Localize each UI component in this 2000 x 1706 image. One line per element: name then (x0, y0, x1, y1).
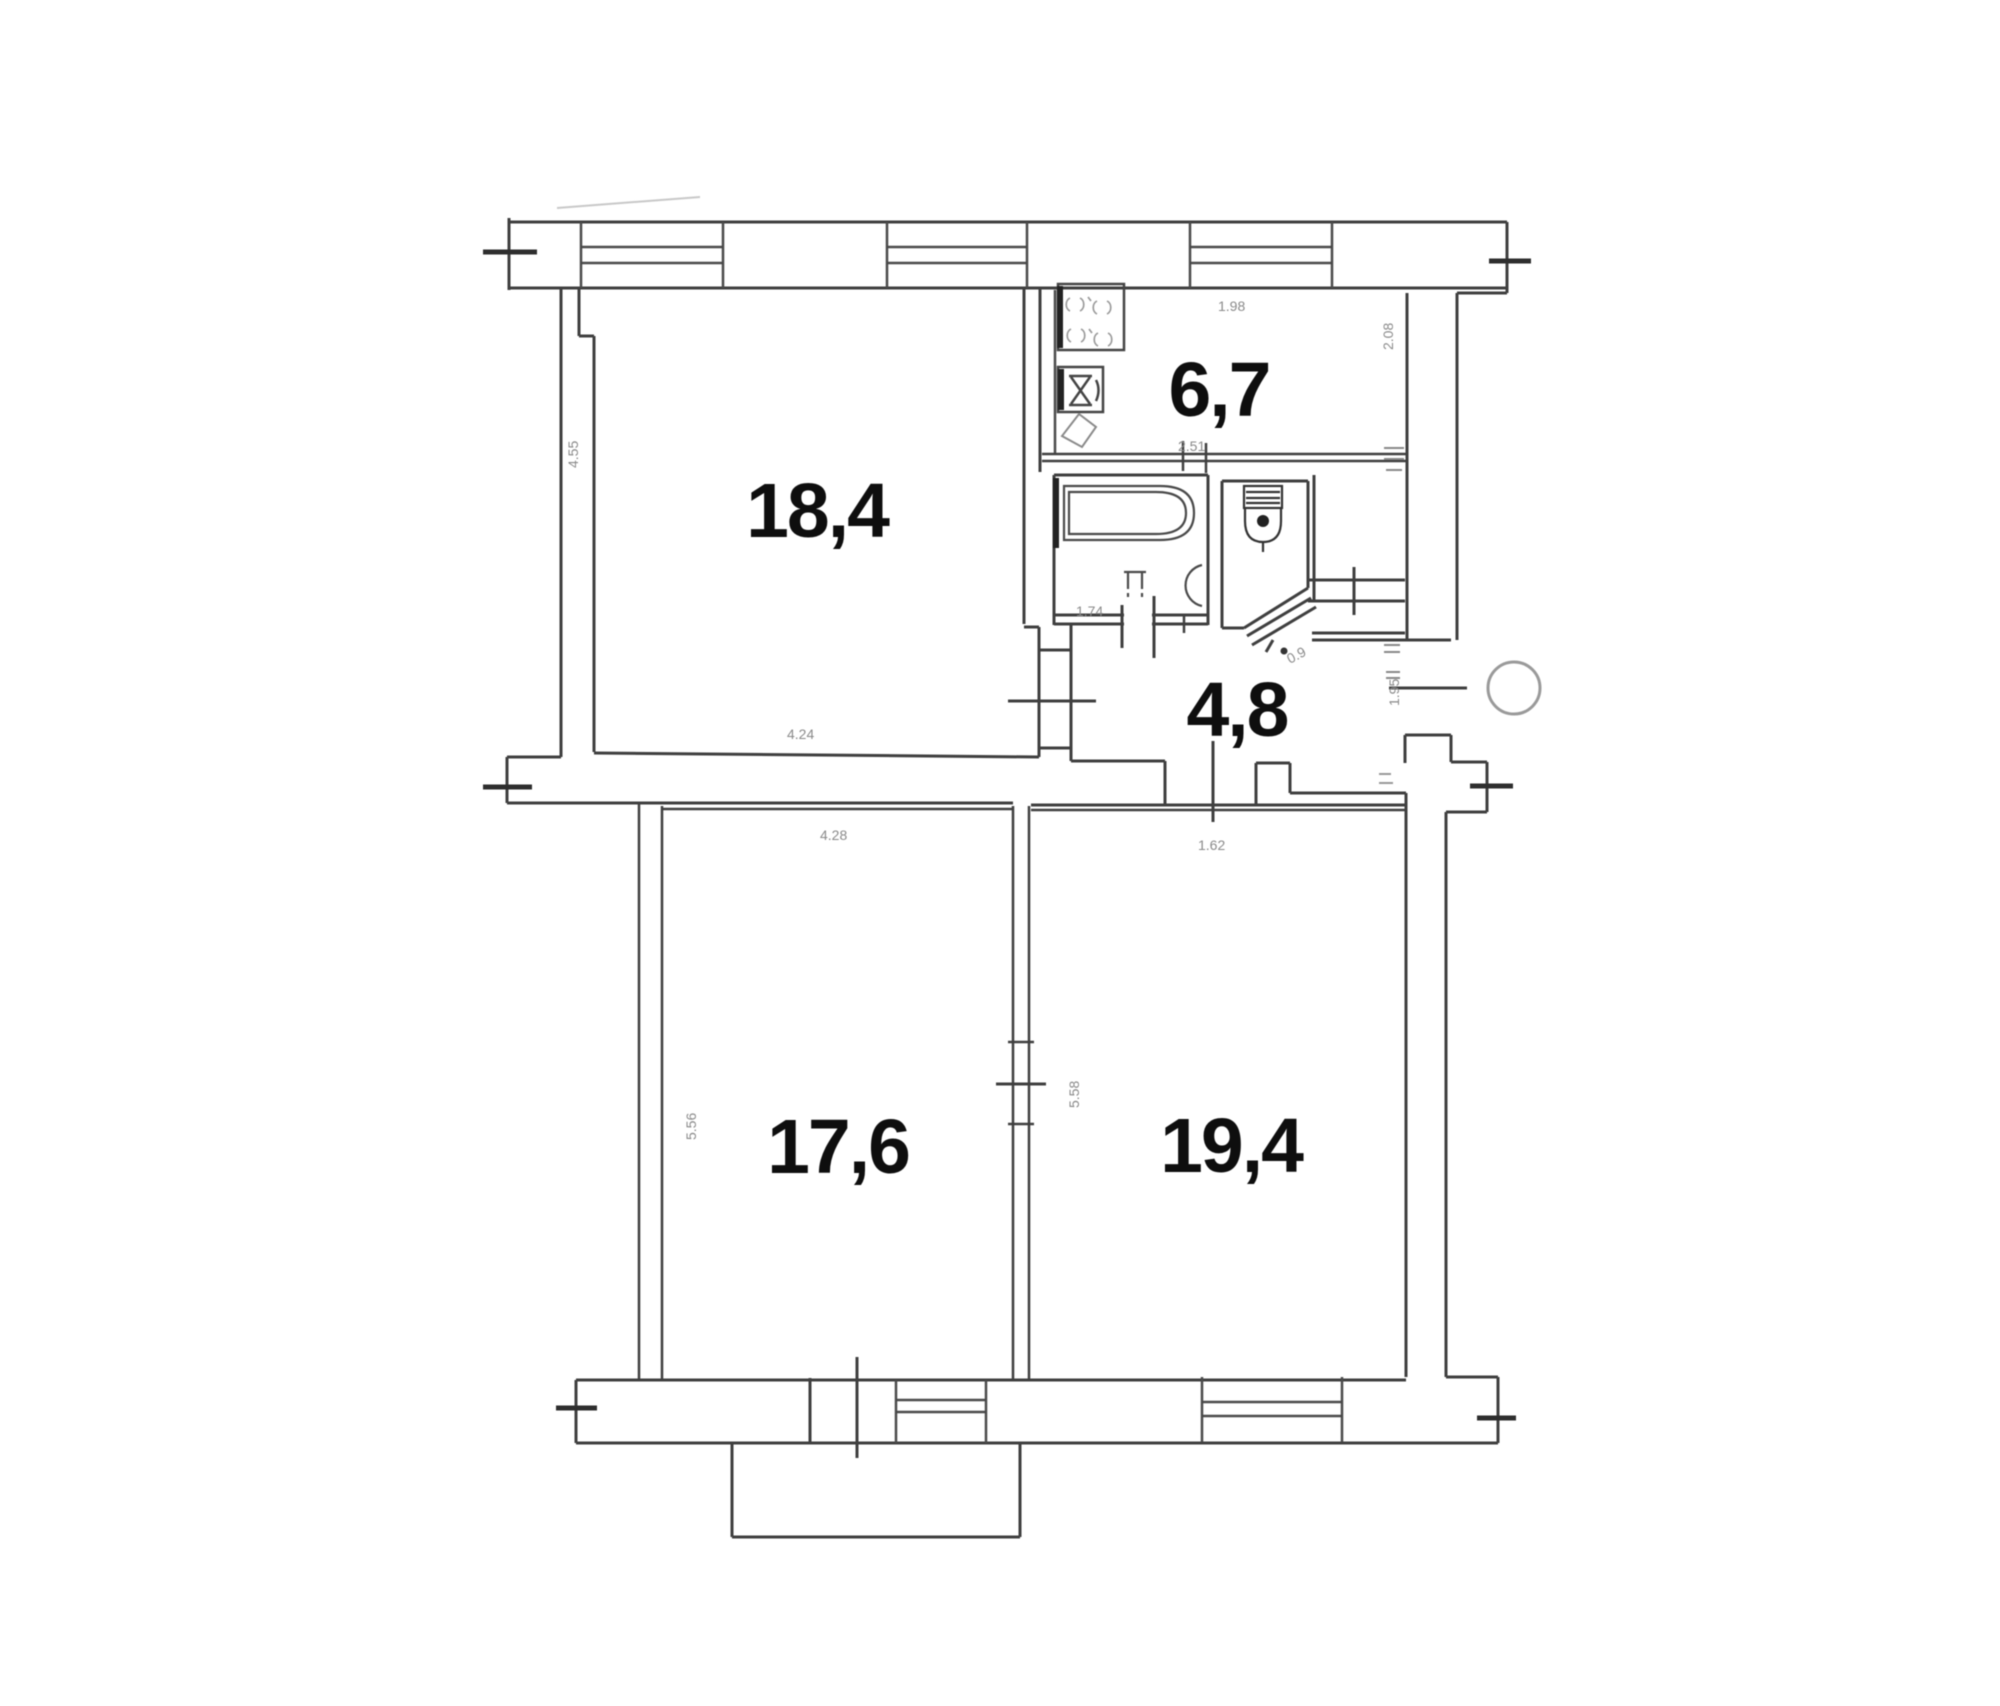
svg-text:4.24: 4.24 (787, 726, 814, 742)
svg-text:1.98: 1.98 (1218, 298, 1245, 314)
svg-text:6,7: 6,7 (1168, 347, 1269, 433)
svg-text:2.08: 2.08 (1380, 323, 1396, 350)
svg-text:0.9: 0.9 (1284, 643, 1309, 666)
svg-text:2.51: 2.51 (1178, 438, 1205, 454)
svg-text:4.55: 4.55 (565, 441, 581, 468)
svg-text:5.56: 5.56 (683, 1113, 699, 1140)
svg-text:4,8: 4,8 (1186, 667, 1287, 753)
svg-text:1.74: 1.74 (1076, 603, 1103, 619)
svg-text:18,4: 18,4 (746, 468, 890, 554)
svg-text:17,6: 17,6 (767, 1104, 909, 1190)
svg-text:4.28: 4.28 (820, 827, 847, 843)
svg-text:1.62: 1.62 (1198, 837, 1225, 853)
svg-text:5.58: 5.58 (1066, 1081, 1082, 1108)
svg-text:1.95: 1.95 (1386, 679, 1402, 706)
svg-text:19,4: 19,4 (1160, 1103, 1304, 1189)
